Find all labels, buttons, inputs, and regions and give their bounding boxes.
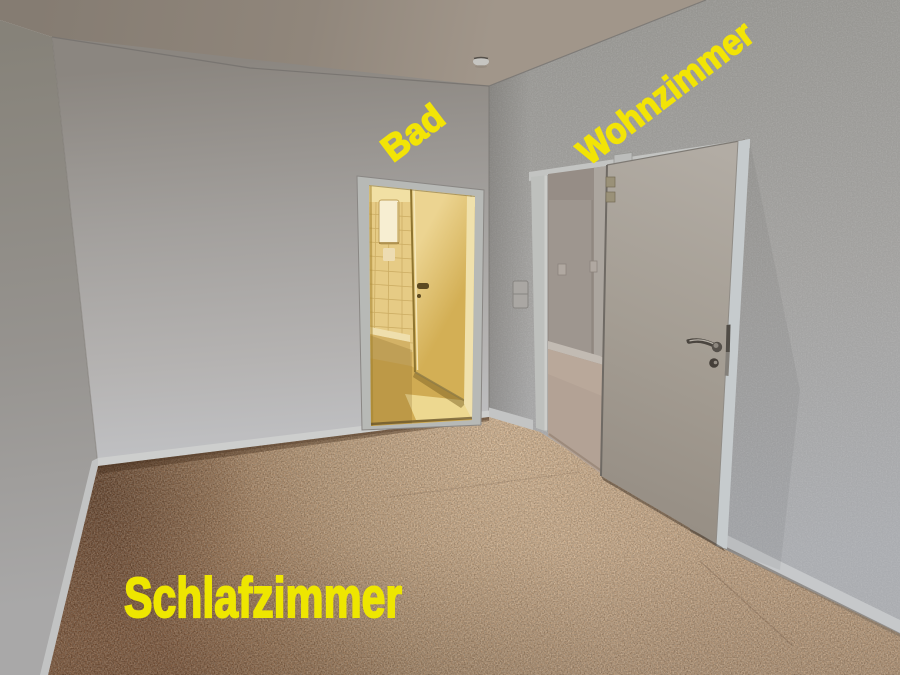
svg-text:Schlafzimmer: Schlafzimmer — [124, 566, 402, 630]
